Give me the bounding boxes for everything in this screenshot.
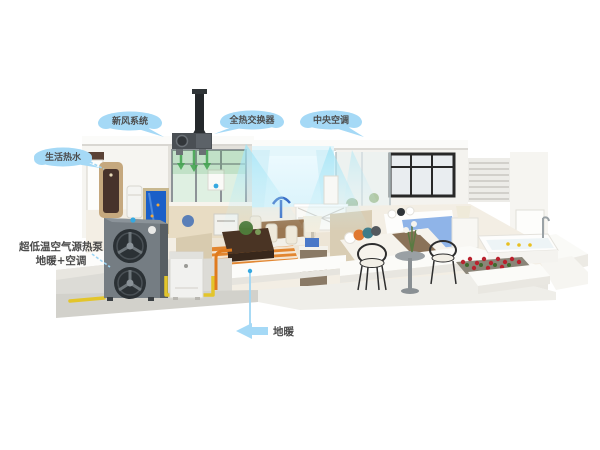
rubber-duck: [528, 243, 532, 247]
callout-tail: [338, 127, 364, 137]
callout-floor-heating: 地暖: [236, 323, 294, 339]
callout-central-ac: 中央空调: [300, 111, 364, 138]
callout-fresh-air-label: 新风系统: [112, 115, 148, 127]
heat-pump-unit: [104, 218, 168, 301]
roof-left: [82, 136, 254, 147]
callout-tail: [214, 127, 242, 134]
callout-floor-heating-label: 地暖: [273, 325, 294, 338]
scene: 新风系统 全热交换器 中央空调 生活热水 超低温空气源热泵 地暖+空调 地暖: [0, 0, 600, 450]
house-illustration: 新风系统 全热交换器 中央空调 生活热水 超低温空气源热泵 地暖+空调 地暖: [0, 0, 600, 450]
rubber-duck: [506, 242, 510, 246]
callout-water-heater-label: 生活热水: [45, 151, 82, 163]
callout-outdoor-line2: 地暖+空调: [36, 254, 87, 267]
pillow: [397, 208, 405, 216]
callout-heat-exchanger-label: 全热交换器: [228, 114, 275, 126]
hydronic-module: [170, 252, 203, 300]
bedroom-window: [390, 154, 454, 196]
marker-dot-heat-pump: [130, 217, 135, 222]
heat-pump-fan-bottom: [114, 267, 146, 299]
heat-pump-fan-top: [113, 229, 147, 263]
green-airflow: [172, 150, 246, 174]
module-logo: [184, 264, 188, 268]
callout-heat-exchanger: 全热交换器: [214, 111, 284, 135]
marker-dot-floor: [248, 269, 252, 273]
unit-fan: [177, 136, 188, 147]
bedside-lamp: [456, 206, 471, 218]
blue-decor: [305, 238, 319, 247]
brand-badge: [148, 226, 156, 234]
exhaust-pipe: [190, 89, 209, 139]
wall-mounted-unit: [324, 176, 338, 204]
water-softener: [127, 186, 142, 218]
callout-outdoor-line1: 超低温空气源热泵: [18, 240, 103, 253]
marker-dot-wall-unit: [214, 184, 219, 189]
water-heater-tank: [99, 162, 123, 218]
wall-plate: [182, 215, 194, 227]
callout-central-ac-label: 中央空调: [313, 114, 349, 126]
rubber-duck: [517, 243, 521, 247]
callout-tail: [138, 128, 164, 137]
callout-fresh-air: 新风系统: [98, 112, 164, 138]
floor-heating-arrow: [236, 323, 268, 339]
